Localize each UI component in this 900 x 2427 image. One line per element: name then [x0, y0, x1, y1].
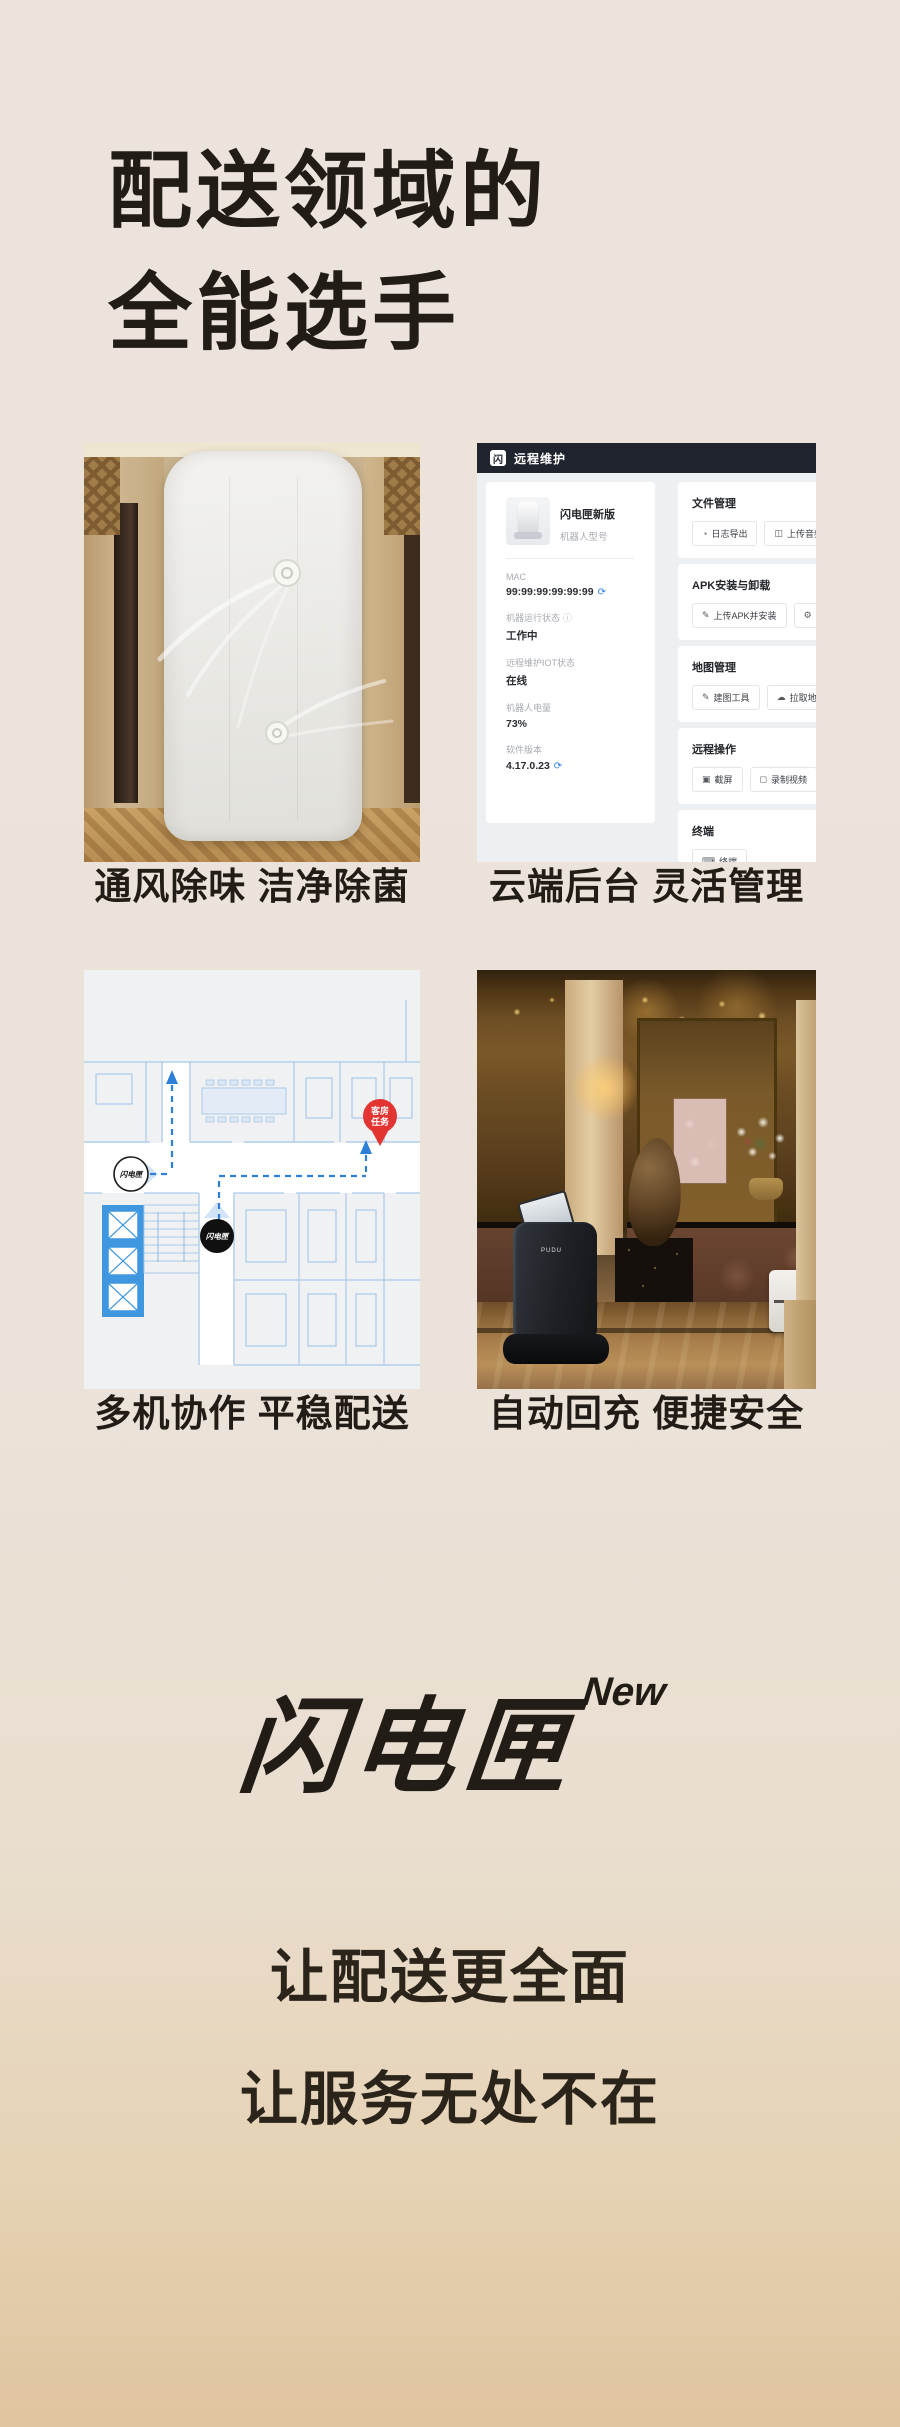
gear-icon — [804, 610, 812, 621]
pull-map-button[interactable]: 拉取地图 — [767, 685, 816, 710]
hero-title-line1: 配送领域的 — [108, 130, 548, 252]
robot-brand-label: PUDU — [541, 1248, 562, 1254]
screenshot-button[interactable]: 截屏 — [692, 767, 743, 792]
field-value: 99:99:99:99:99:99 — [506, 586, 641, 598]
dashboard-body: 闪电匣新版 机器人型号 MAC 99:99:99:99:99:99 机器运行状态… — [477, 473, 816, 862]
field-value: 在线 — [506, 673, 641, 688]
map-tool-icon — [702, 692, 710, 703]
record-video-button[interactable]: 录制视频 — [750, 767, 816, 792]
field-label: MAC — [506, 572, 641, 582]
robot-marker-black: 闪电匣 — [200, 1219, 234, 1253]
info-icon[interactable] — [563, 611, 572, 624]
dashboard-title: 远程维护 — [514, 450, 566, 467]
hero-title: 配送领域的 全能选手 — [108, 130, 548, 374]
dashboard-header: 远程维护 — [477, 443, 816, 473]
robot-base — [503, 1334, 609, 1364]
robot-marker-white: 闪电匣 — [114, 1157, 148, 1191]
device-name: 闪电匣新版 — [560, 506, 615, 522]
flower-arrangement — [729, 1108, 791, 1188]
record-video-icon — [760, 774, 767, 785]
feature-map: 客房 任务 闪电匣 闪电匣 — [84, 970, 420, 1389]
elevator-block — [102, 1205, 144, 1317]
feature-caption-3: 多机协作 平稳配送 — [84, 1389, 420, 1439]
brand-logo-text: 闪电匣 — [233, 1662, 585, 1813]
refresh-icon[interactable] — [554, 761, 562, 772]
wall-painting — [673, 1098, 727, 1184]
field-label: 远程维护IOT状态 — [506, 656, 641, 669]
action-cards-column: 文件管理 日志导出 上传音频 APK安装与卸载 — [678, 482, 816, 862]
field-value: 73% — [506, 718, 641, 730]
feature-caption-2: 云端后台 灵活管理 — [477, 862, 816, 912]
slogan-line2: 让服务无处不在 — [0, 2052, 900, 2136]
field-value: 工作中 — [506, 628, 641, 643]
file-management-card: 文件管理 日志导出 上传音频 — [678, 482, 816, 558]
screenshot-icon — [702, 774, 711, 785]
feature-dashboard-screenshot: 远程维护 闪电匣新版 机器人型号 MAC 99:99:99:99:99:99 — [477, 443, 816, 862]
svg-text:闪电匣: 闪电匣 — [120, 1170, 144, 1179]
device-info-card: 闪电匣新版 机器人型号 MAC 99:99:99:99:99:99 机器运行状态… — [486, 482, 655, 823]
flower-pot — [749, 1178, 783, 1200]
refresh-icon[interactable] — [598, 587, 606, 598]
floorplan-map: 客房 任务 闪电匣 闪电匣 — [84, 970, 420, 1389]
robot-software-button[interactable]: 机器人软件 — [794, 603, 816, 628]
cloud-download-icon — [777, 692, 786, 703]
log-export-button[interactable]: 日志导出 — [692, 521, 757, 546]
hero-title-line2: 全能选手 — [108, 252, 548, 374]
field-value: 4.17.0.23 — [506, 760, 641, 772]
feature-caption-4: 自动回充 便捷安全 — [477, 1389, 816, 1439]
new-badge: New — [581, 1670, 668, 1715]
feature-photo-lobby: PUDU — [477, 970, 816, 1389]
log-export-icon — [702, 529, 707, 539]
feature-photo-ventilation — [84, 443, 420, 862]
mapping-tool-button[interactable]: 建图工具 — [692, 685, 760, 710]
marble-column-right-base — [784, 1300, 816, 1389]
slogan-line1: 让配送更全面 — [0, 1930, 900, 2014]
brand-logo: 闪电匣New — [0, 1662, 900, 1813]
poster-page: 配送领域的 全能选手 — [0, 0, 900, 2427]
field-label: 机器运行状态 — [506, 611, 641, 624]
vase-pedestal — [615, 1238, 693, 1302]
delivery-robot: PUDU — [513, 1222, 597, 1340]
remote-ops-card: 远程操作 截屏 录制视频 远程 — [678, 728, 816, 804]
upload-audio-button[interactable]: 上传音频 — [764, 521, 816, 546]
terminal-card: 终端 终端 — [678, 810, 816, 862]
fan-icon — [274, 560, 300, 586]
airflow-graphic — [84, 443, 420, 862]
feature-caption-1: 通风除味 洁净除菌 — [84, 862, 420, 912]
robot-thumbnail — [506, 497, 550, 545]
svg-text:闪电匣: 闪电匣 — [206, 1232, 230, 1241]
wall-sconce-glow — [573, 1056, 637, 1120]
pin-label-line2: 任务 — [370, 1116, 390, 1127]
apk-install-card: APK安装与卸载 上传APK并安装 机器人软件 — [678, 564, 816, 640]
fan-icon — [266, 722, 288, 744]
field-label: 软件版本 — [506, 743, 641, 756]
flash-logo-icon — [490, 450, 506, 466]
upload-file-icon — [774, 528, 783, 539]
divider — [506, 558, 634, 559]
map-management-card: 地图管理 建图工具 拉取地图 — [678, 646, 816, 722]
terminal-button[interactable]: 终端 — [692, 849, 747, 862]
field-label: 机器人电量 — [506, 701, 641, 714]
upload-apk-button[interactable]: 上传APK并安装 — [692, 603, 787, 628]
pin-label-line1: 客房 — [370, 1105, 389, 1116]
device-model-label: 机器人型号 — [560, 529, 615, 543]
edit-icon — [702, 610, 710, 621]
